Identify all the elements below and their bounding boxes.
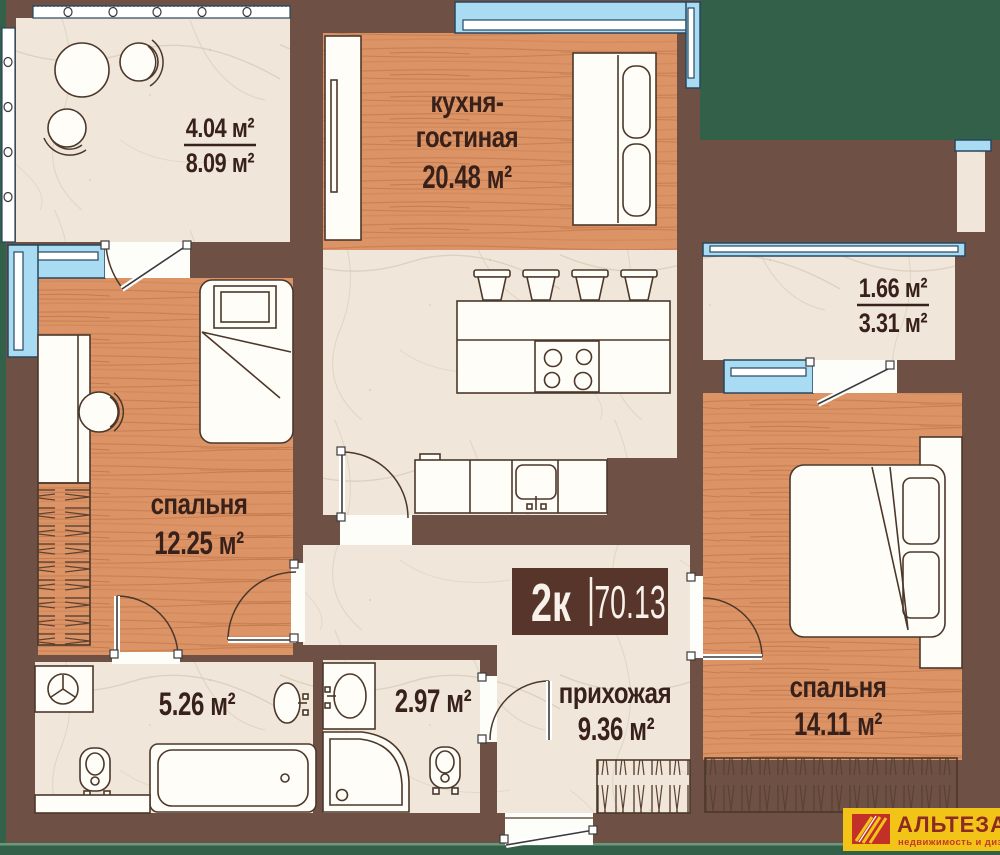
balcony-right-area-full: 3.31 м² [859, 309, 928, 339]
balcony-right-window-frame [710, 246, 958, 252]
bathroom-main-area: 5.26 м² [159, 686, 235, 722]
logo-tagline-text: недвижимость и дизайн [898, 837, 1000, 848]
balcony-top-area-reduced: 4.04 м² [186, 114, 255, 144]
kitchen-living-name-1: кухня- [430, 84, 503, 118]
bedroom-left-area: 12.25 м² [154, 525, 243, 561]
hangers-wardrobe-icon [705, 758, 957, 812]
tv-icon [331, 80, 337, 192]
bedroom-right-name: спальня [790, 669, 887, 703]
floor-plan: 4.04 м² 8.09 м² кухня- гостиная 20.48 м²… [0, 0, 1000, 855]
bedroom-left-window-frame-v [14, 252, 23, 350]
bedroom-right-window-frame [731, 368, 806, 376]
kitchen-loggia-window-frame [463, 20, 691, 30]
logo-brand-text: АЛЬТЕЗА [897, 812, 1000, 837]
bedroom-left-name: спальня [151, 486, 248, 520]
double-bed-icon [790, 465, 945, 637]
pillow-icon [903, 478, 939, 544]
hallway-name: прихожая [559, 675, 671, 709]
sofa-icon [573, 53, 656, 225]
bathtub-icon [150, 744, 316, 812]
hallway-area: 9.36 м² [578, 711, 654, 747]
bedroom-right-area: 14.11 м² [794, 706, 882, 742]
round-table-icon [55, 43, 109, 97]
neighbor-balcony-sliver [957, 151, 985, 232]
hangers-wardrobe-icon [38, 483, 90, 645]
kitchen-wall-notch [607, 458, 677, 518]
bed-icon [200, 280, 293, 443]
washing-machine-icon [35, 666, 93, 712]
logo-icon [852, 814, 890, 844]
pillow-icon [903, 552, 939, 618]
floor-plan-canvas: 4.04 м² 8.09 м² кухня- гостиная 20.48 м²… [0, 0, 1000, 855]
balcony-right-area-reduced: 1.66 м² [859, 274, 928, 304]
balcony-top-area-full: 8.09 м² [186, 149, 255, 179]
desk-chair-icon [79, 392, 119, 432]
kitchen-living-area: 20.48 м² [422, 159, 511, 195]
bathroom-shelf-icon [35, 795, 150, 813]
kitchen-loggia-side-frame [688, 8, 694, 78]
kitchen-living-name-2: гостиная [416, 119, 518, 153]
kitchen-counter-icon [415, 454, 607, 513]
sink-counter-icon [323, 663, 375, 729]
unit-total-area: 70.13 [594, 577, 665, 629]
kitchen-island-icon [457, 301, 670, 393]
bathroom-guest-area: 2.97 м² [395, 683, 471, 719]
unit-badge: 2к 70.13 [512, 568, 668, 635]
stove-icon [535, 341, 599, 392]
unit-rooms-count: 2к [531, 572, 571, 632]
hangers-wardrobe-icon [597, 760, 690, 813]
neighbor-window-band [955, 140, 991, 151]
brand-logo: АЛЬТЕЗА недвижимость и дизайн [843, 808, 1000, 851]
